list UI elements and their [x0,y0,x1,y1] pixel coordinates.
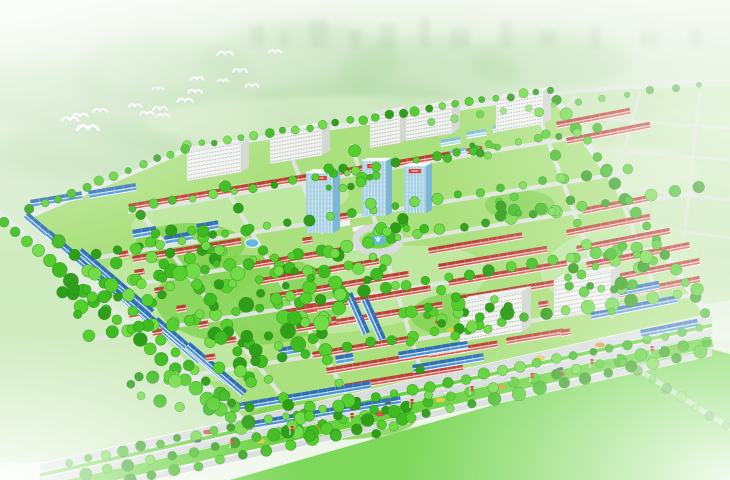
tree [379,264,386,271]
tree [389,422,399,432]
tree [380,282,391,293]
tree [204,293,217,306]
tree [409,197,419,207]
tree [68,283,80,295]
tree [403,225,410,232]
tree [184,315,194,325]
tree [282,282,289,289]
tree [285,291,295,301]
tree [332,301,346,315]
tree [361,414,374,427]
tree [395,234,401,240]
tree [232,307,241,316]
tree [385,110,394,119]
tree [371,162,380,171]
tower-side [386,158,392,216]
tree [413,157,420,164]
tree [255,276,263,284]
tree [73,310,82,319]
tree [371,113,379,121]
tree [314,315,330,331]
tree [200,265,209,274]
tree [159,259,169,269]
distant-building [420,18,429,48]
tree [334,288,347,301]
tree [304,430,315,441]
tree [372,171,380,179]
tree [166,319,179,332]
tree [287,311,301,325]
tree [371,392,380,401]
tree [191,279,202,290]
tree [399,109,408,118]
tree [304,411,315,422]
tree [362,237,374,249]
tree [369,405,378,414]
tree [369,253,377,261]
tree [363,276,371,284]
tree [166,282,175,291]
tower-cap-band [404,164,426,166]
tree [365,198,376,209]
haze-top-left [0,0,360,260]
tree [52,262,67,277]
tree [243,259,254,270]
tree [329,276,342,289]
tree [98,291,111,304]
tree [377,420,387,430]
tree [87,292,98,303]
tree [231,267,245,281]
tree [352,263,364,275]
tree [256,304,264,312]
tree [172,266,187,281]
tree [300,292,312,304]
masterplan-aerial-render [0,0,730,480]
tree [128,306,138,316]
masterplan-svg [0,0,730,480]
tree [270,293,282,305]
banner-flag-top [350,413,353,415]
distant-building [380,24,396,48]
tree [392,203,399,210]
tree [239,297,254,312]
tree [291,268,298,275]
tree [57,286,69,298]
tree [359,116,368,125]
tower-cap-band [362,159,386,161]
tree [136,279,146,289]
tree [344,261,353,270]
tree [342,342,352,352]
tree [322,355,332,365]
tree [274,266,284,276]
tree [185,263,200,278]
tree [332,400,344,412]
tree [391,158,401,168]
tree [398,213,409,224]
haze-bottom-left [0,330,300,480]
tree [158,290,167,299]
tree [318,265,331,278]
tree [358,285,371,298]
tree [213,260,220,267]
tree [319,405,327,413]
tree [388,405,401,418]
tree [382,227,391,236]
tree [104,278,118,292]
tree [335,379,343,387]
tree [390,390,398,398]
tree [307,274,315,282]
tree [391,281,400,290]
tree [351,424,362,435]
tree [300,318,310,328]
rooftop-structure [420,106,426,109]
tree [113,292,122,301]
tree [195,310,204,319]
tree [228,279,237,288]
tree [88,267,101,280]
tree [98,307,110,319]
tree [410,107,420,117]
banner-flag-bottom [350,416,353,418]
tree [366,337,376,347]
haze-bottom-right [400,250,730,480]
tree [142,294,154,306]
tree [420,224,429,233]
tree [256,289,264,297]
tree [214,279,224,289]
tree [372,429,381,438]
tree [122,289,135,302]
tree [315,294,326,305]
rooftop-structure [379,111,385,114]
tree [112,315,122,325]
tree [321,423,333,435]
tree [330,430,341,441]
tree [387,335,397,345]
